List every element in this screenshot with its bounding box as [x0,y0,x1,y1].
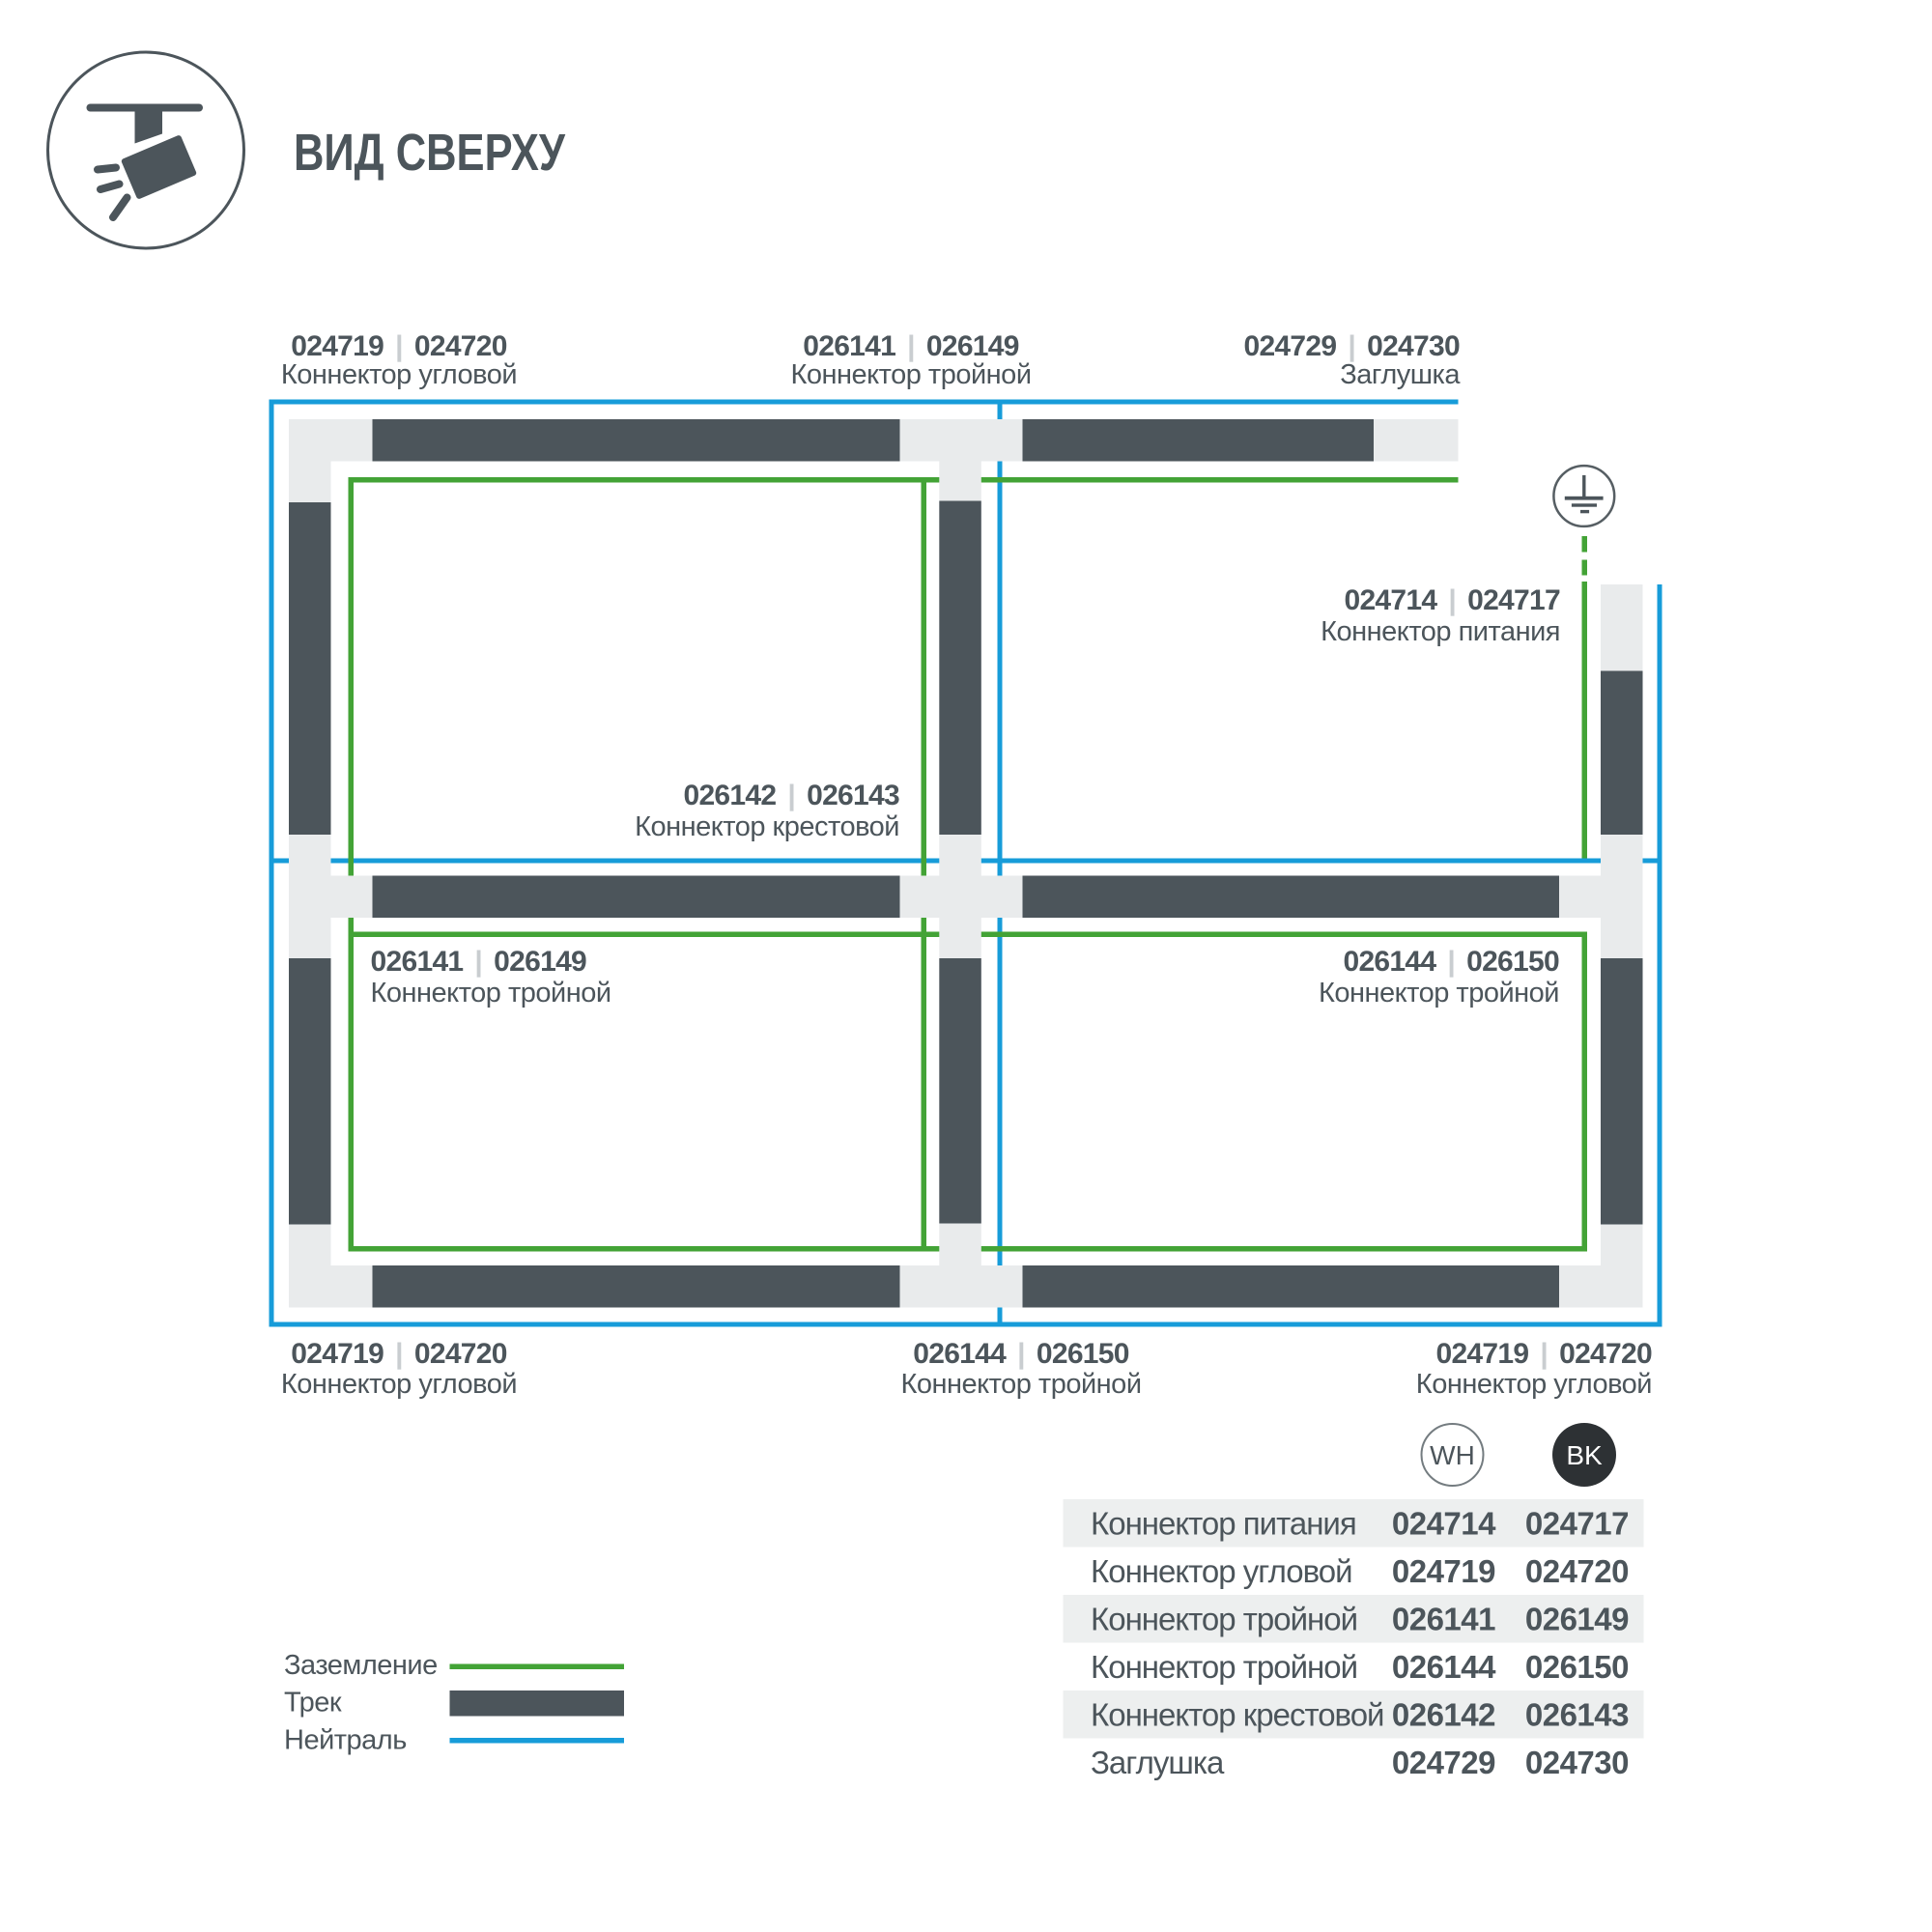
svg-text:024729: 024729 [1392,1745,1495,1780]
svg-text:026141|026149: 026141|026149 [371,946,587,978]
svg-text:026141: 026141 [1392,1602,1495,1637]
svg-text:BK: BK [1566,1440,1603,1470]
svg-text:Коннектор тройной: Коннектор тройной [1091,1649,1357,1685]
svg-text:Коннектор угловой: Коннектор угловой [1416,1369,1652,1400]
svg-text:026142|026143: 026142|026143 [683,780,899,811]
svg-text:Заземление: Заземление [284,1650,438,1681]
svg-text:Коннектор тройной: Коннектор тройной [790,359,1031,390]
svg-text:Коннектор угловой: Коннектор угловой [281,359,517,390]
svg-text:Нейтраль: Нейтраль [284,1725,407,1756]
svg-text:024714: 024714 [1392,1506,1496,1542]
svg-text:Заглушка: Заглушка [1091,1745,1225,1780]
svg-text:Коннектор тройной: Коннектор тройной [1091,1602,1357,1637]
svg-text:024719|024720: 024719|024720 [291,330,507,362]
svg-text:026143: 026143 [1525,1697,1629,1733]
svg-text:Коннектор тройной: Коннектор тройной [1319,978,1559,1009]
svg-text:Коннектор тройной: Коннектор тройной [371,978,611,1009]
svg-text:Коннектор угловой: Коннектор угловой [1091,1553,1352,1589]
svg-text:024717: 024717 [1525,1506,1629,1542]
svg-text:ВИД СВЕРХУ: ВИД СВЕРХУ [294,124,566,182]
svg-text:Трек: Трек [284,1688,342,1719]
svg-text:024729|024730: 024729|024730 [1243,330,1460,362]
svg-text:Заглушка: Заглушка [1340,359,1461,390]
svg-text:Коннектор крестовой: Коннектор крестовой [635,811,899,842]
svg-text:024730: 024730 [1525,1745,1629,1780]
svg-text:Коннектор тройной: Коннектор тройной [900,1369,1141,1400]
svg-text:026142: 026142 [1392,1697,1495,1733]
svg-text:024719: 024719 [1392,1553,1495,1589]
svg-text:026144: 026144 [1392,1649,1496,1685]
svg-text:Коннектор питания: Коннектор питания [1321,616,1560,647]
svg-text:026141|026149: 026141|026149 [803,330,1019,362]
svg-text:024714|024717: 024714|024717 [1344,584,1560,616]
svg-text:026144|026150: 026144|026150 [1343,946,1559,978]
svg-text:026149: 026149 [1525,1602,1629,1637]
svg-text:024720: 024720 [1525,1553,1629,1589]
svg-text:Коннектор питания: Коннектор питания [1091,1506,1356,1542]
svg-text:Коннектор угловой: Коннектор угловой [281,1369,517,1400]
svg-text:WH: WH [1430,1440,1475,1470]
svg-text:026150: 026150 [1525,1649,1629,1685]
svg-text:024719|024720: 024719|024720 [291,1338,507,1370]
svg-text:026144|026150: 026144|026150 [913,1338,1129,1370]
svg-text:024719|024720: 024719|024720 [1435,1338,1652,1370]
svg-text:Коннектор крестовой: Коннектор крестовой [1091,1697,1384,1733]
